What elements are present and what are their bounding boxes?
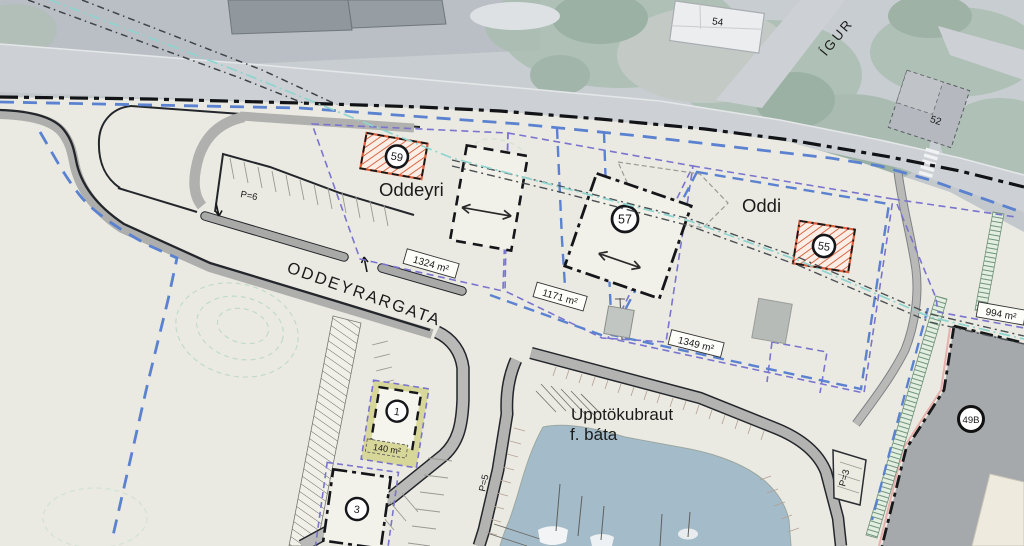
- svg-text:f. báta: f. báta: [570, 425, 618, 444]
- svg-text:Oddi: Oddi: [742, 195, 781, 216]
- svg-text:59: 59: [390, 151, 404, 165]
- svg-text:Oddeyri: Oddeyri: [379, 179, 444, 200]
- svg-text:Upptökubraut: Upptökubraut: [571, 405, 673, 424]
- svg-text:49B: 49B: [963, 415, 980, 426]
- svg-text:54: 54: [711, 16, 724, 29]
- svg-text:55: 55: [817, 240, 831, 254]
- svg-text:57: 57: [618, 213, 632, 227]
